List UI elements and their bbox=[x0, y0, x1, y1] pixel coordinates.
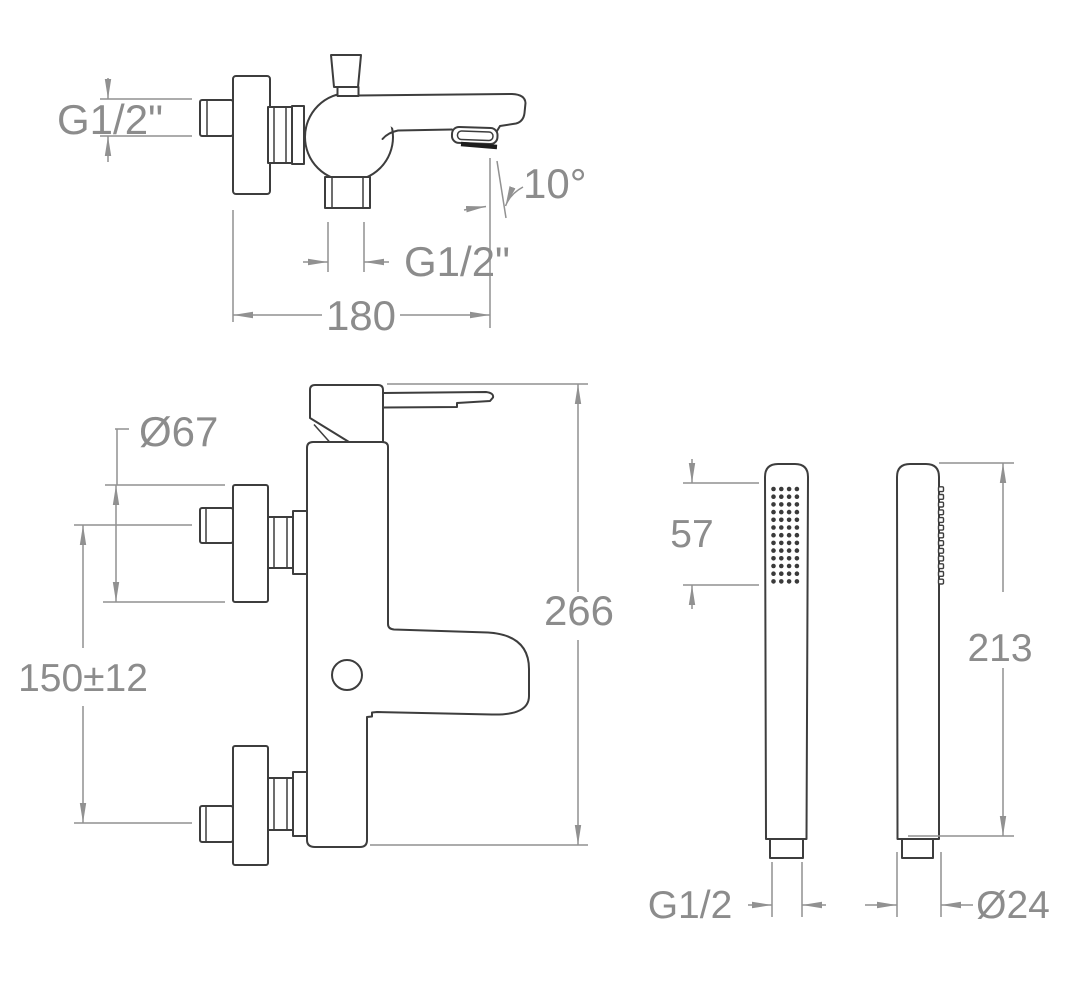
spray-dot bbox=[779, 510, 784, 515]
handshower-body-side bbox=[897, 464, 939, 839]
spray-dot bbox=[795, 564, 800, 569]
spray-dot bbox=[795, 541, 800, 546]
spray-dot bbox=[771, 518, 776, 523]
spray-dot bbox=[779, 556, 784, 561]
hex-connector bbox=[268, 107, 292, 163]
drawing-page: G1/2" 10° G1/2" 180 bbox=[0, 0, 1074, 1000]
spray-dot bbox=[787, 533, 792, 538]
label-flange-diameter: Ø67 bbox=[139, 408, 218, 455]
spray-nozzle-bump bbox=[939, 495, 944, 500]
spray-nozzle-bump bbox=[939, 487, 944, 492]
spray-dot bbox=[795, 494, 800, 499]
spray-dot bbox=[787, 541, 792, 546]
spray-dot bbox=[779, 548, 784, 553]
spray-dot bbox=[771, 502, 776, 507]
spray-dot bbox=[771, 556, 776, 561]
spray-dot bbox=[787, 564, 792, 569]
handshower-side-view: 213 Ø24 bbox=[865, 463, 1050, 927]
spray-dot bbox=[771, 487, 776, 492]
spray-dot bbox=[779, 541, 784, 546]
spray-dot bbox=[779, 518, 784, 523]
spray-dot bbox=[787, 548, 792, 553]
handshower-inlet-nut-side bbox=[902, 839, 933, 858]
label-spray-face-length: 57 bbox=[670, 513, 713, 556]
upper-boss bbox=[293, 511, 307, 574]
lever-handle bbox=[383, 392, 493, 408]
spray-dot bbox=[787, 494, 792, 499]
spray-dot bbox=[779, 502, 784, 507]
label-spout-angle: 10° bbox=[523, 160, 587, 207]
spray-dot bbox=[787, 579, 792, 584]
spray-nozzle-bump bbox=[939, 502, 944, 507]
spray-dot bbox=[787, 518, 792, 523]
spray-nozzle-bump bbox=[939, 510, 944, 515]
lower-wall-flange bbox=[233, 746, 268, 865]
dim-handshower-thread bbox=[748, 862, 826, 917]
aerator-ring bbox=[452, 127, 498, 145]
spray-dot bbox=[779, 487, 784, 492]
spray-dot bbox=[771, 541, 776, 546]
label-total-height: 266 bbox=[544, 587, 614, 634]
mixer-body-profile bbox=[307, 442, 529, 847]
spray-dot bbox=[795, 502, 800, 507]
spray-dot bbox=[779, 564, 784, 569]
lower-boss bbox=[293, 772, 307, 836]
spray-dot bbox=[795, 548, 800, 553]
label-spout-reach: 180 bbox=[326, 292, 396, 339]
label-handle-diameter: Ø24 bbox=[976, 884, 1050, 927]
spray-nozzle-bump bbox=[939, 564, 944, 569]
spray-dot bbox=[787, 502, 792, 507]
spray-nozzle-bump bbox=[939, 579, 944, 584]
spray-dot bbox=[771, 579, 776, 584]
spray-dot bbox=[771, 494, 776, 499]
upper-hex-connector bbox=[268, 517, 293, 568]
spray-dot bbox=[787, 571, 792, 576]
handshower-inlet-nut-front bbox=[770, 839, 803, 858]
spray-dot bbox=[771, 525, 776, 530]
label-mixer-outlet-thread: G1/2" bbox=[404, 238, 510, 285]
label-handshower-thread: G1/2 bbox=[648, 884, 733, 927]
spray-nozzle-bump bbox=[939, 548, 944, 553]
diverter-knob bbox=[331, 55, 361, 87]
lower-hex-connector bbox=[268, 778, 293, 830]
spray-nozzle-bump bbox=[939, 572, 944, 577]
body-boss bbox=[292, 106, 304, 164]
mixer-front-view: Ø67 150±12 266 bbox=[18, 384, 614, 865]
spray-nozzle-bump bbox=[939, 525, 944, 530]
label-mixer-inlet-thread: G1/2" bbox=[57, 96, 163, 143]
label-inlet-spacing: 150±12 bbox=[18, 657, 148, 700]
spray-dot bbox=[795, 556, 800, 561]
spray-dot bbox=[779, 579, 784, 584]
upper-wall-flange bbox=[233, 485, 268, 602]
spray-dot bbox=[795, 518, 800, 523]
aerator-slot bbox=[461, 144, 497, 147]
spray-nozzle-bump bbox=[939, 533, 944, 538]
spray-dot bbox=[795, 510, 800, 515]
spray-dot bbox=[779, 494, 784, 499]
spray-dot bbox=[795, 525, 800, 530]
dim-outlet-thread bbox=[303, 222, 389, 272]
wall-plate bbox=[233, 76, 270, 194]
mixer-side-view: G1/2" 10° G1/2" 180 bbox=[57, 55, 587, 339]
spray-dot bbox=[787, 510, 792, 515]
spray-dot bbox=[771, 571, 776, 576]
handshower-front-view: 57 G1/2 bbox=[648, 459, 826, 927]
spray-nozzle-bump bbox=[939, 556, 944, 561]
technical-drawing-canvas: G1/2" 10° G1/2" 180 bbox=[0, 0, 1074, 1000]
spray-dot bbox=[771, 533, 776, 538]
inlet-nut bbox=[200, 100, 233, 136]
spray-dot bbox=[787, 525, 792, 530]
spray-dot bbox=[779, 525, 784, 530]
spray-dot bbox=[779, 571, 784, 576]
spray-dot bbox=[771, 510, 776, 515]
diverter-stem bbox=[338, 87, 359, 96]
spray-dot bbox=[795, 571, 800, 576]
spray-dot bbox=[795, 533, 800, 538]
lower-inlet-nut bbox=[200, 806, 233, 842]
spray-dot bbox=[795, 487, 800, 492]
spray-dot bbox=[787, 556, 792, 561]
spray-nozzle-bump bbox=[939, 541, 944, 546]
upper-inlet-nut bbox=[200, 508, 233, 543]
spray-dot bbox=[779, 533, 784, 538]
aerator bbox=[452, 127, 498, 145]
spray-nozzle-bump bbox=[939, 518, 944, 523]
spray-dot bbox=[787, 487, 792, 492]
spray-dot bbox=[795, 579, 800, 584]
dim-handle-diameter bbox=[865, 852, 973, 917]
spray-dot bbox=[771, 548, 776, 553]
label-handshower-length: 213 bbox=[967, 627, 1032, 670]
cartridge-housing bbox=[310, 385, 383, 442]
spray-dot bbox=[771, 564, 776, 569]
